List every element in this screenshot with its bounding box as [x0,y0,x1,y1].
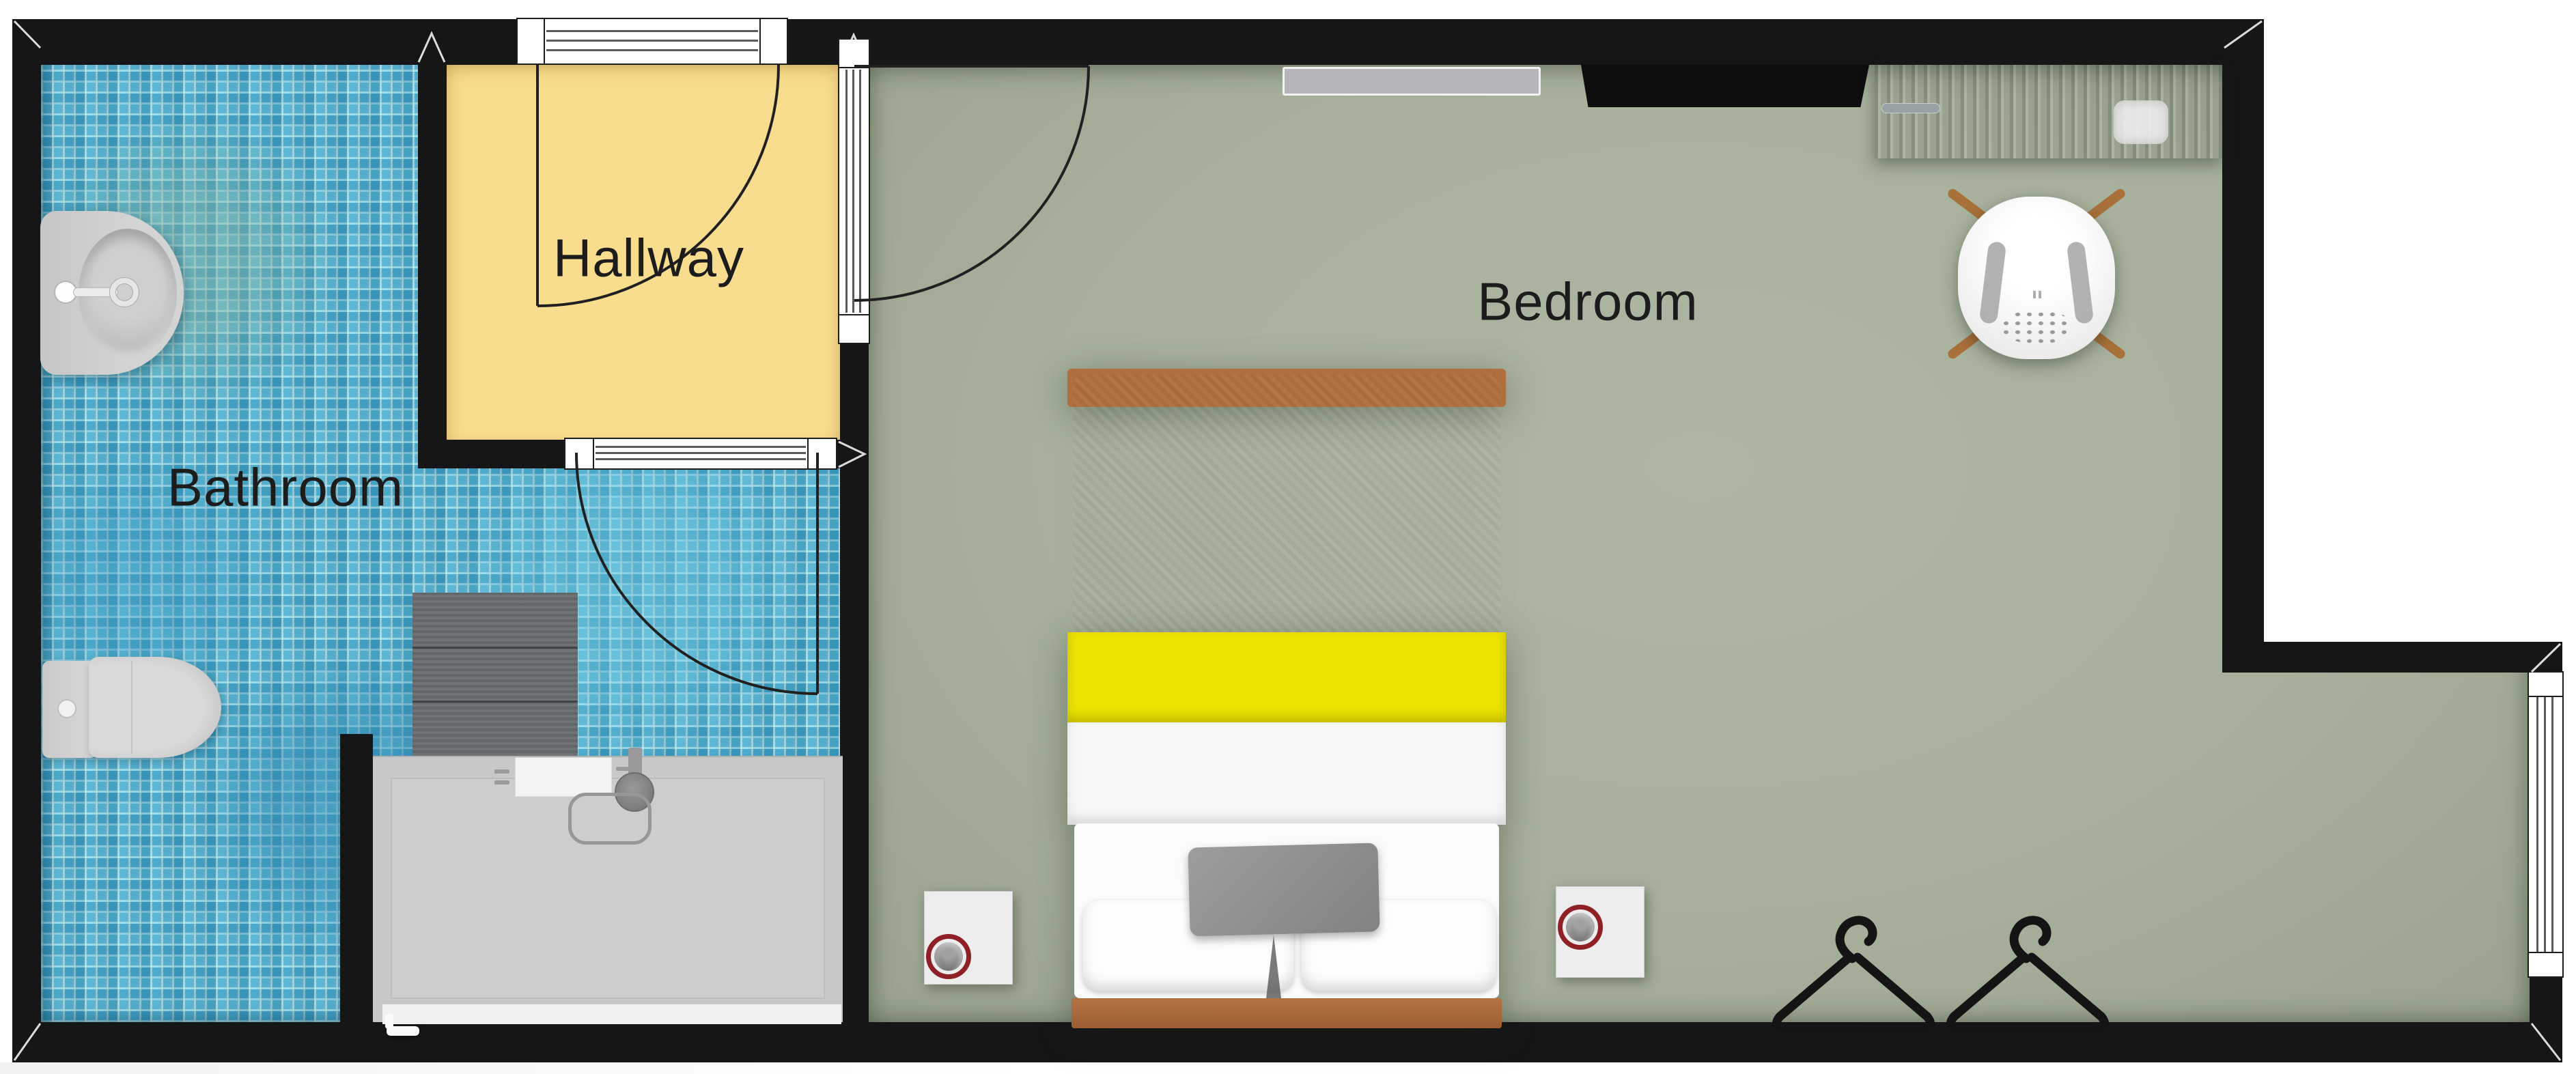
desk-chair[interactable] [1948,191,2125,369]
smart-button-left[interactable] [926,934,971,979]
door-glazing-line [596,458,806,460]
shower-arm [628,748,642,775]
window-glazing-line [2551,697,2553,952]
shower-hose [568,793,652,845]
shower-vent [494,780,509,785]
desk-lamp [2114,100,2168,144]
toilet-lid-seam [131,661,132,754]
door-glazing-line [596,452,806,454]
double-bed[interactable] [1067,369,1506,1028]
door-glazing-line [596,446,806,448]
chair-mark [2033,291,2036,298]
window-jamb [2528,952,2564,978]
outside-area [0,1062,2576,1074]
chair-armrest-slot [1979,241,2006,324]
smart-button-right[interactable] [1558,905,1603,950]
bedroom-door[interactable] [838,38,870,344]
bathroom-door[interactable] [564,438,837,470]
door-glazing-line [546,30,758,32]
outside-area [2562,642,2576,1074]
wall-radiator[interactable] [1283,67,1541,96]
bed-accent-stripe [1067,632,1506,722]
entrance-door[interactable] [516,18,788,65]
smart-button-core [1566,913,1595,942]
bedroom-window[interactable] [2528,671,2564,978]
bed-duvet [1073,374,1500,634]
door-glazing-line [852,70,854,313]
smart-button-core [934,942,963,971]
throw-pillow [1188,843,1380,936]
bedroom-label: Bedroom [1477,271,1698,333]
bath-mat[interactable] [412,593,578,756]
nightstand-left[interactable] [924,891,1013,985]
chair-shell [1958,197,2115,359]
door-jamb [516,18,545,65]
wall-left [12,19,41,1062]
door-jamb [759,18,788,65]
bed-sheet-fold [1067,722,1506,825]
wall-tv[interactable] [1581,65,1869,107]
wall-hallway-left [418,41,447,468]
desk[interactable] [1875,65,2222,158]
floor-plan: Bathroom Hallway Bedroom [0,0,2576,1074]
toilet-flush-button [57,699,76,718]
wall-right-stub [2530,976,2562,1062]
shower[interactable] [373,756,843,1022]
window-glazing-line [2544,697,2546,952]
bed-frame-foot [1072,998,1502,1028]
chair-mark [2039,291,2041,298]
door-jamb [838,314,870,344]
window-glazing-line [2536,697,2538,952]
wall-shower-partition [340,734,373,1062]
wall-notch [2222,642,2562,673]
door-jamb [807,438,837,470]
outside-area [0,0,12,1074]
shower-door-handle[interactable] [387,1026,419,1036]
outside-area [2264,0,2576,642]
door-glazing-line [546,49,758,51]
door-glazing-line [845,70,848,313]
sink-faucet-ring [110,278,139,307]
mat-seam [412,701,578,703]
toilet[interactable] [89,657,221,758]
shower-glass-door [382,1004,841,1024]
door-jamb [838,38,870,68]
chair-armrest-slot [2067,241,2094,324]
shower-vent [494,769,509,774]
hallway-label: Hallway [553,227,744,289]
door-glazing-line [859,70,861,313]
desk-drawer-handle [1881,103,1940,113]
door-glazing-line [546,40,758,42]
bathroom-label: Bathroom [167,457,404,519]
mat-seam [412,647,578,649]
nightstand-right[interactable] [1556,886,1644,978]
outside-area [0,0,2576,19]
wall-right-upper [2222,19,2264,673]
shower-mixer-box [515,757,612,797]
wall-top [12,19,2264,65]
door-jamb [564,438,594,470]
chair-perforation [2000,310,2074,344]
window-jamb [2528,671,2564,697]
